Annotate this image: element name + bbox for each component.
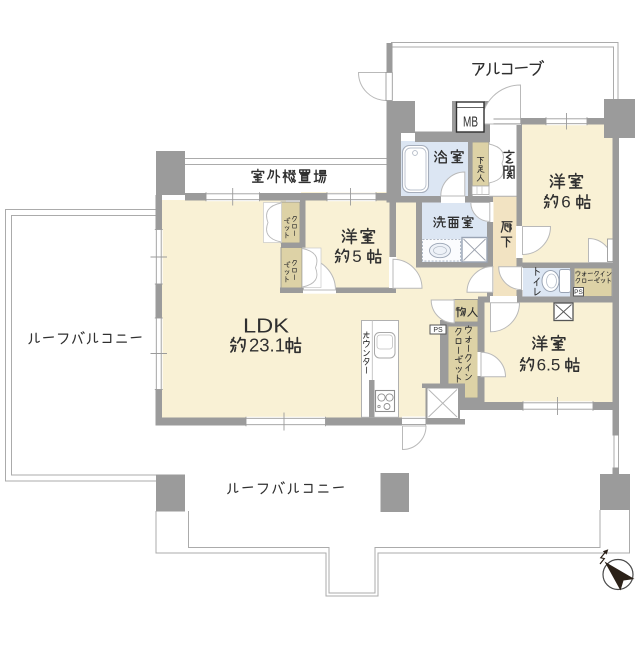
svg-text:5: 5 (352, 247, 361, 266)
svg-text:PS: PS (433, 327, 443, 334)
svg-text:MB: MB (463, 115, 478, 131)
svg-text:6: 6 (561, 193, 570, 212)
svg-text:23.1: 23.1 (249, 335, 285, 356)
svg-text:PS: PS (574, 289, 583, 296)
svg-text:6.5: 6.5 (537, 356, 561, 375)
